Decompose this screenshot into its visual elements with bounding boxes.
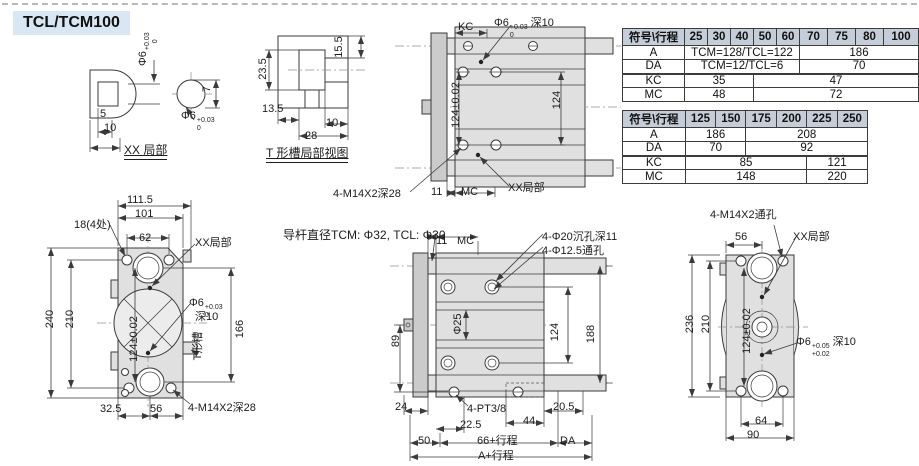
end-dim-90: 90 <box>747 429 759 442</box>
t2-h1: 125 <box>685 111 715 128</box>
side-dim-50: 50 <box>418 435 430 448</box>
t1-da-label: DA <box>623 60 685 74</box>
page-title: TCL/TCM100 <box>13 11 130 35</box>
front-dim-56: 56 <box>150 403 162 416</box>
end-m14-label: 4-M14X2通孔 <box>710 209 777 222</box>
plan-dim-kc: KC <box>458 21 473 34</box>
xx-dim-7: 7 <box>201 79 213 99</box>
side-counterbore-label: 4-Φ20沉孔深11 <box>542 231 617 244</box>
t1-mc-c1: 48 <box>685 88 754 102</box>
table-row: MC148220 <box>623 170 868 184</box>
xx-dim-10: 10 <box>104 122 116 135</box>
side-dim-22-5: 22.5 <box>460 419 481 432</box>
front-dim-166: 166 <box>234 314 246 344</box>
table-row: KC3547 <box>623 74 919 88</box>
t1-h3: 40 <box>731 29 754 46</box>
t2-h2: 150 <box>716 111 746 128</box>
front-depth-label: 深10 <box>195 311 218 324</box>
front-xx-ref: XX局部 <box>195 237 232 250</box>
drawing-sheet: TCL/TCM100 5 10 Φ6+0.030 7 <box>0 0 919 466</box>
table2-header-row: 符号\行程125150175200225250 <box>623 111 868 128</box>
side-dim-phi25: Φ25 <box>452 309 464 339</box>
t1-h8: 80 <box>856 29 884 46</box>
t1-h2: 30 <box>708 29 731 46</box>
t2-da-c1: 70 <box>685 142 746 156</box>
t1-h4: 50 <box>754 29 777 46</box>
t2-h6: 250 <box>837 111 867 128</box>
t1-h1: 25 <box>685 29 708 46</box>
t2-kc-label: KC <box>623 156 686 170</box>
end-dim-236: 236 <box>684 309 696 339</box>
t1-h5: 60 <box>777 29 800 46</box>
tslot-dim-10: 10 <box>326 117 338 130</box>
side-view-drawing <box>388 225 615 465</box>
side-rod-diameter-note: 导杆直径TCM: Φ32, TCL: Φ30 <box>283 229 446 243</box>
front-dim-240: 240 <box>44 304 56 334</box>
side-dim-66-stroke: 66+行程 <box>477 435 518 448</box>
side-dim-da: DA <box>560 435 575 448</box>
plan-dim-124: 124 <box>551 85 563 115</box>
front-dim-18: 18(4处) <box>74 219 111 232</box>
t1-h0: 符号\行程 <box>623 29 685 46</box>
table-row: DA7092 <box>623 142 868 156</box>
front-dim-124-tol: 124±0.02 <box>128 309 140 369</box>
end-phi6-label: Φ6+0.05+0.02深10 <box>796 336 856 358</box>
spec-table-strokes-25-100: 符号\行程2530405060707580100 ATCM=128/TCL=12… <box>622 28 919 102</box>
front-dim-111-5: 111.5 <box>127 194 153 207</box>
t1-h6: 70 <box>800 29 828 46</box>
plan-dim-11: 11 <box>431 186 442 199</box>
front-dim-62: 62 <box>139 232 151 245</box>
plan-view-drawing <box>393 15 623 205</box>
tslot-dim-28: 28 <box>305 130 317 143</box>
t1-a-label: A <box>623 46 685 60</box>
front-dim-210: 210 <box>64 304 76 334</box>
table-row: ATCM=128/TCL=122186 <box>623 46 919 60</box>
t1-h7: 75 <box>828 29 856 46</box>
t2-da-c2: 92 <box>746 142 868 156</box>
table-row: A186208 <box>623 128 868 142</box>
t2-da-label: DA <box>623 142 686 156</box>
t1-kc-label: KC <box>623 74 685 88</box>
t1-h9: 100 <box>884 29 919 46</box>
side-dim-mc: MC <box>457 235 474 248</box>
side-dim-89: 89 <box>390 329 402 353</box>
front-tslot-ref: T形槽 <box>189 326 205 366</box>
t1-a-c2: 186 <box>800 46 919 60</box>
tslot-caption: T 形槽局部视图 <box>266 147 348 163</box>
t1-da-c2: 70 <box>800 60 919 74</box>
t2-mc-label: MC <box>623 170 686 184</box>
side-pt38-label: 4-PT3/8 <box>467 403 506 416</box>
plan-dim-124-tol: 124±0.02 <box>450 75 462 135</box>
t1-kc-c1: 35 <box>685 74 754 88</box>
xx-phi6-vertical-label: Φ6+0.030 <box>137 17 159 81</box>
table1-header-row: 符号\行程2530405060707580100 <box>623 29 919 46</box>
end-xx-ref: XX局部 <box>793 231 830 244</box>
plan-dim-mc: MC <box>461 186 478 199</box>
plan-xx-ref: XX局部 <box>508 182 545 195</box>
t2-a-c2: 208 <box>746 128 868 142</box>
side-dim-20-5: 20.5 <box>553 401 574 414</box>
t2-h0: 符号\行程 <box>623 111 686 128</box>
t2-a-label: A <box>623 128 686 142</box>
end-dim-210: 210 <box>700 309 712 339</box>
t2-h4: 200 <box>776 111 806 128</box>
plan-phi6-label: Φ6+0.030深10 <box>494 17 554 39</box>
side-dim-11: 11 <box>436 235 447 248</box>
table-row: KC85121 <box>623 156 868 170</box>
end-dim-124-tol: 124±0.02 <box>741 301 753 361</box>
end-dim-56: 56 <box>735 231 747 244</box>
t2-h3: 175 <box>746 111 776 128</box>
t2-a-c1: 186 <box>685 128 746 142</box>
t2-mc-c2: 220 <box>807 170 868 184</box>
t1-mc-c2: 72 <box>754 88 919 102</box>
xx-detail-caption: XX 局部 <box>124 144 167 160</box>
side-dim-24: 24 <box>395 401 407 414</box>
t2-mc-c1: 148 <box>685 170 806 184</box>
t1-a-c1: TCM=128/TCL=122 <box>685 46 800 60</box>
tslot-dim-23-5: 23.5 <box>257 54 269 84</box>
t2-kc-c1: 85 <box>685 156 806 170</box>
t1-da-c1: TCM=12/TCL=6 <box>685 60 800 74</box>
xx-dim-5: 5 <box>100 108 106 121</box>
end-dim-64: 64 <box>755 415 767 428</box>
table-row: DATCM=12/TCL=670 <box>623 60 919 74</box>
t1-kc-c2: 47 <box>754 74 919 88</box>
xx-phi6-label: Φ6+0.030 <box>181 110 215 132</box>
side-dim-a-stroke: A+行程 <box>478 450 514 463</box>
tslot-dim-13-5: 13.5 <box>262 103 283 116</box>
front-dim-101: 101 <box>135 208 153 221</box>
tslot-dim-15-5: 15.5 <box>333 32 345 62</box>
plan-m14-label: 4-M14X2深28 <box>333 188 401 201</box>
spec-table-strokes-125-250: 符号\行程125150175200225250 A186208 DA7092 K… <box>622 110 868 184</box>
side-dim-44: 44 <box>523 415 535 428</box>
t1-mc-label: MC <box>623 88 685 102</box>
front-dim-32-5: 32.5 <box>100 403 121 416</box>
t2-kc-c2: 121 <box>807 156 868 170</box>
side-dim-124: 124 <box>549 317 561 347</box>
tslot-detail-drawing <box>253 28 371 146</box>
sheet-top-dashed-border <box>2 3 917 5</box>
side-through-hole-label: 4-Φ12.5通孔 <box>542 245 604 258</box>
t2-h5: 225 <box>807 111 837 128</box>
table-row: MC4872 <box>623 88 919 102</box>
side-dim-188: 188 <box>585 319 597 349</box>
front-m14-label: 4-M14X2深28 <box>188 402 256 415</box>
